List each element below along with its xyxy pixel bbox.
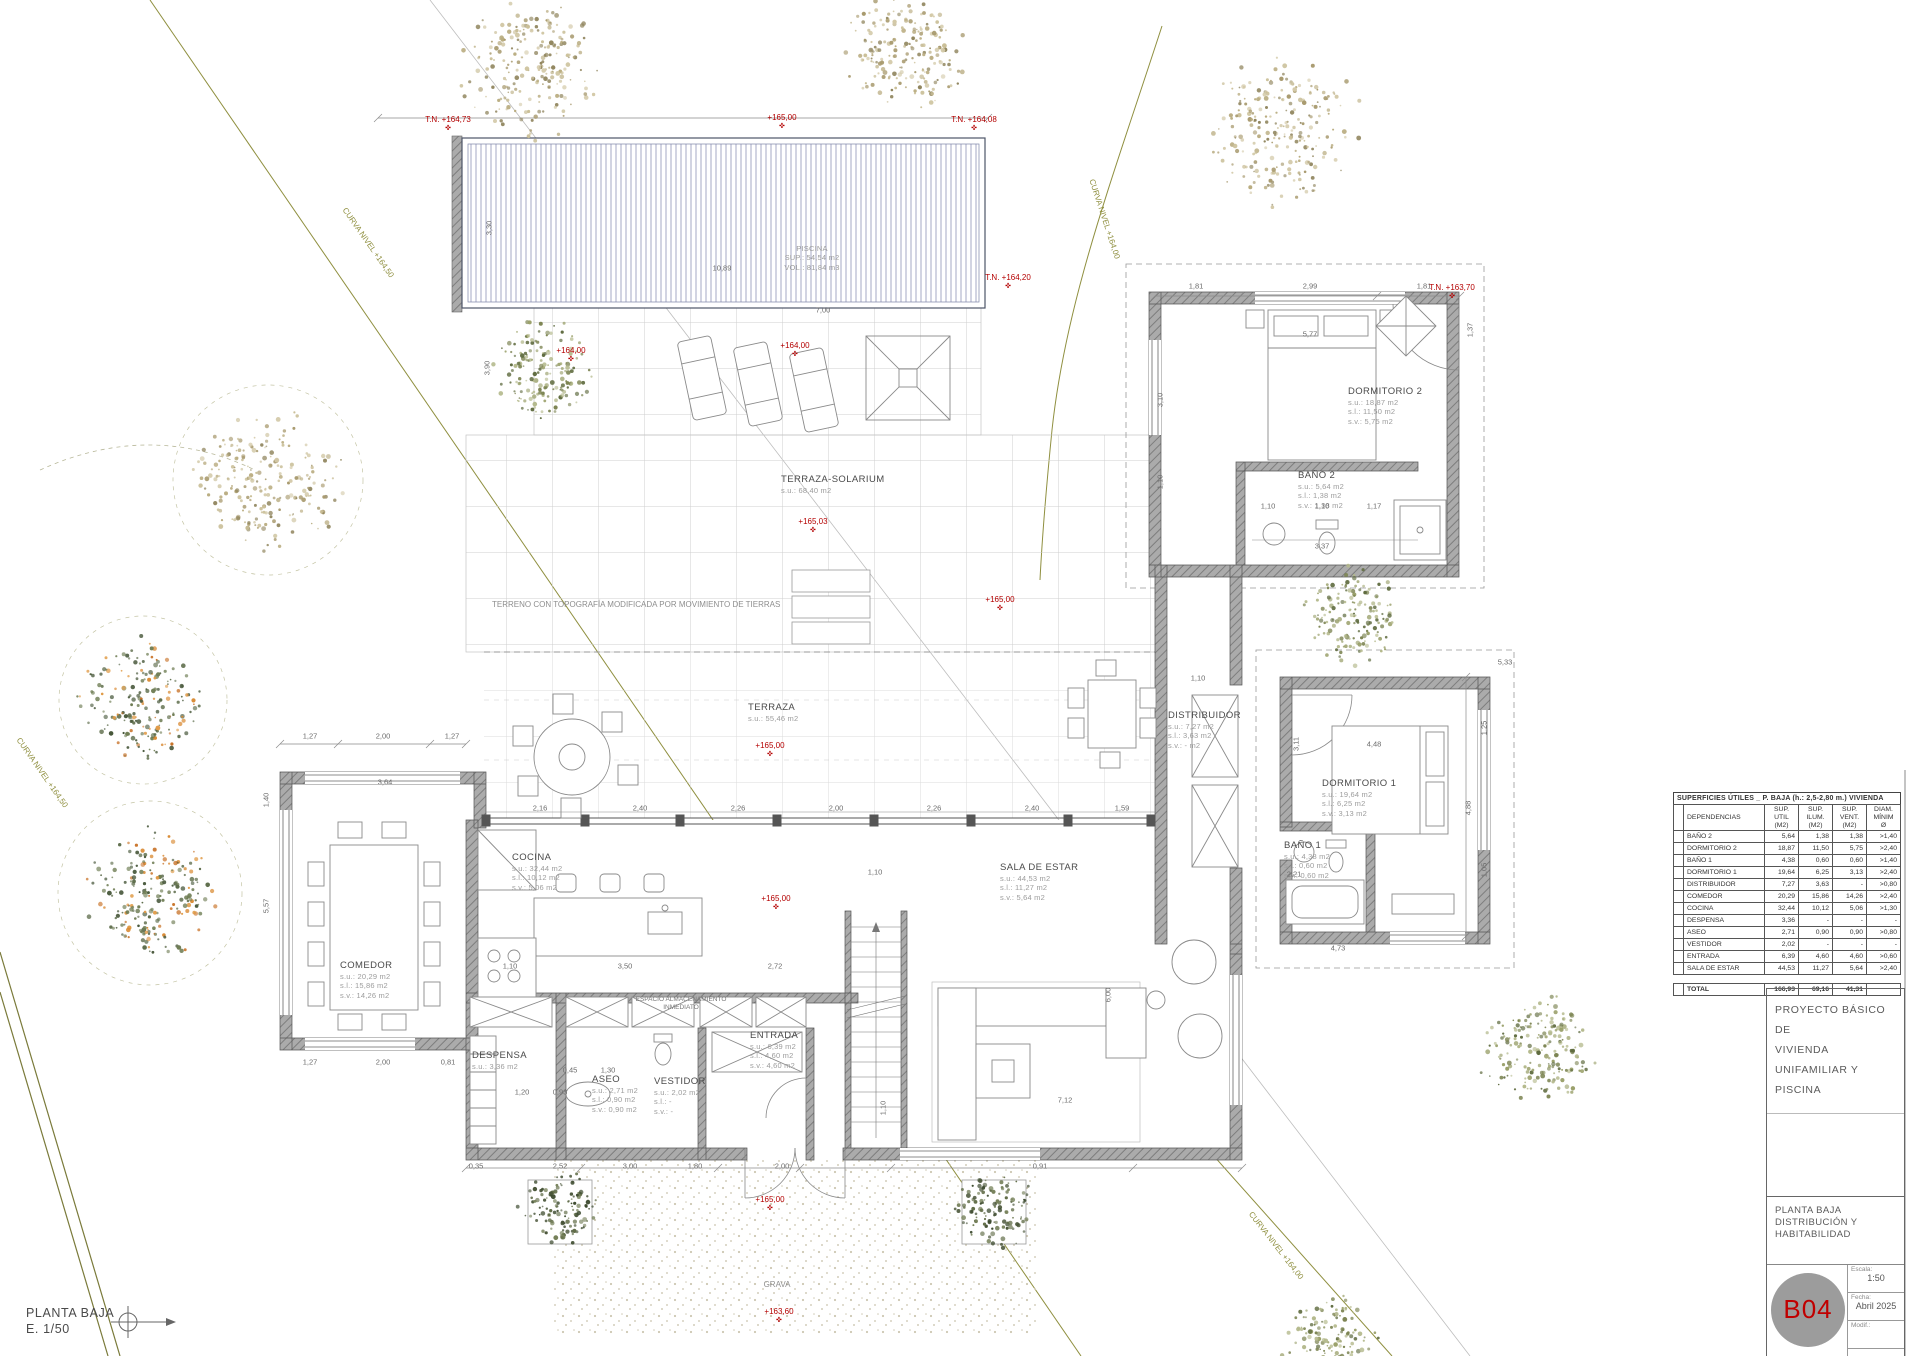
table-row: ASEO2,710,900,90>0,80	[1674, 927, 1901, 939]
modif-field: Modif.:	[1848, 1321, 1904, 1349]
sheet-code: B04	[1783, 1294, 1832, 1325]
table-row: ENTRADA6,394,604,60>0,60	[1674, 951, 1901, 963]
areas-table-body: BAÑO 25,641,381,38>1,40DORMITORIO 218,87…	[1674, 831, 1901, 996]
table-row: DORMITORIO 119,646,253,13>2,40	[1674, 867, 1901, 879]
date-field: Fecha: Abril 2025	[1848, 1293, 1904, 1321]
table-row: DISTRIBUIDOR7,273,63->0,80	[1674, 879, 1901, 891]
floor-plan-drawing	[0, 0, 1920, 1356]
table-row: COMEDOR20,2915,8614,26>2,40	[1674, 891, 1901, 903]
title-block-fields: Escala: 1:50 Fecha: Abril 2025 Modif.:	[1847, 1265, 1904, 1356]
title-block-footer: B04 Escala: 1:50 Fecha: Abril 2025 Modif…	[1767, 1264, 1904, 1356]
gravel-area	[528, 1160, 1037, 1336]
areas-table-header: DEPENDENCIASSUP. UTIL (M2)SUP. ILUM. (M2…	[1674, 805, 1901, 831]
pool	[452, 136, 985, 312]
areas-table-title: SUPERFICIES ÚTILES _ P. BAJA (h.: 2,5-2,…	[1673, 792, 1901, 804]
plan-title: PLANTA BAJA	[26, 1306, 114, 1322]
table-row: COCINA32,4410,125,06>1,30	[1674, 903, 1901, 915]
table-row: DORMITORIO 218,8711,505,75>2,40	[1674, 843, 1901, 855]
table-row: BAÑO 14,380,600,60>1,40	[1674, 855, 1901, 867]
col-header: DEPENDENCIAS	[1684, 805, 1765, 831]
table-row: SALA DE ESTAR44,5311,275,64>2,40	[1674, 963, 1901, 975]
table-row: VESTIDOR2,02---	[1674, 939, 1901, 951]
table-row: BAÑO 25,641,381,38>1,40	[1674, 831, 1901, 843]
col-header: DIAM. MÍNIM Ø	[1867, 805, 1901, 831]
table-row: DESPENSA3,36---	[1674, 915, 1901, 927]
title-block: PROYECTO BÁSICO DE VIVIENDA UNIFAMILIAR …	[1766, 988, 1905, 1356]
project-title: PROYECTO BÁSICO DE VIVIENDA UNIFAMILIAR …	[1767, 989, 1904, 1113]
title-block-spacer	[1767, 1113, 1904, 1196]
north-arrow-icon	[111, 1306, 176, 1338]
plan-title-corner: PLANTA BAJA E. 1/50	[26, 1306, 114, 1337]
col-header: SUP. VENT. (M2)	[1833, 805, 1867, 831]
col-header: SUP. ILUM. (M2)	[1799, 805, 1833, 831]
drawing-sheet: PISCINASUP.: 54,54 m2VOL.: 81,84 m3TERRA…	[0, 0, 1920, 1356]
col-header: SUP. UTIL (M2)	[1765, 805, 1799, 831]
plan-scale: E. 1/50	[26, 1322, 114, 1338]
sun-loungers	[677, 335, 839, 432]
areas-table: SUPERFICIES ÚTILES _ P. BAJA (h.: 2,5-2,…	[1673, 792, 1901, 996]
sheet-title: PLANTA BAJA DISTRIBUCIÓN Y HABITABILIDAD	[1767, 1196, 1904, 1264]
scale-field: Escala: 1:50	[1848, 1265, 1904, 1293]
sheet-code-badge: B04	[1771, 1273, 1845, 1347]
